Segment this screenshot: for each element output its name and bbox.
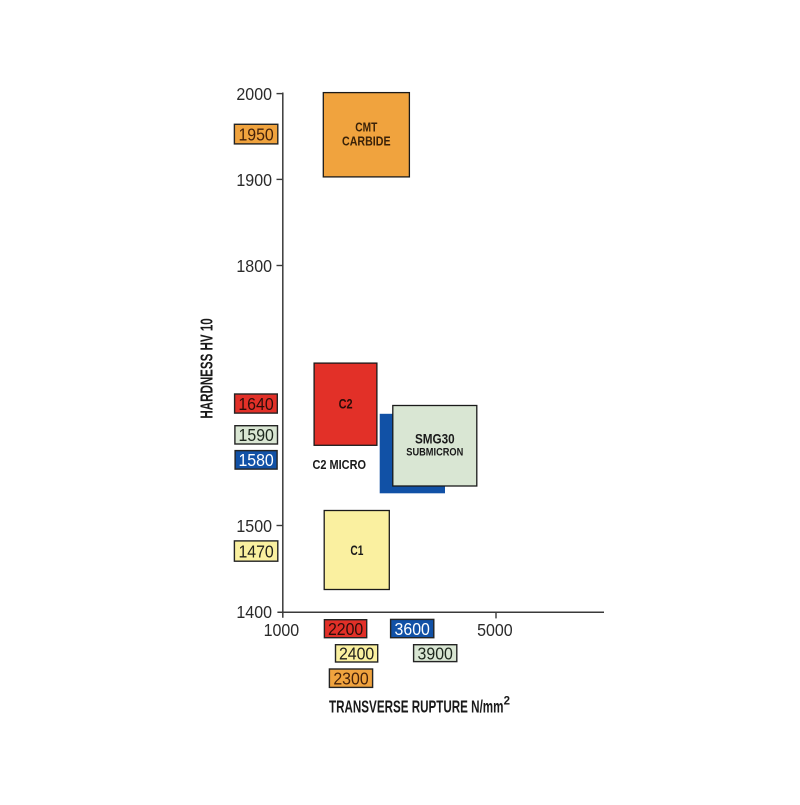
svg-text:CARBIDE: CARBIDE xyxy=(342,134,391,149)
svg-text:HARDNESS HV 10: HARDNESS HV 10 xyxy=(197,318,217,418)
svg-text:1580: 1580 xyxy=(238,450,274,470)
svg-text:3900: 3900 xyxy=(418,644,454,664)
svg-text:C2 MICRO: C2 MICRO xyxy=(313,458,367,472)
svg-text:2400: 2400 xyxy=(339,644,375,664)
svg-text:1400: 1400 xyxy=(236,602,272,622)
svg-text:5000: 5000 xyxy=(477,620,513,640)
svg-text:2300: 2300 xyxy=(333,669,369,689)
svg-text:1500: 1500 xyxy=(236,516,272,536)
svg-text:CMT: CMT xyxy=(355,119,377,134)
svg-text:2: 2 xyxy=(504,696,510,708)
svg-text:SMG30: SMG30 xyxy=(415,431,455,446)
svg-text:3600: 3600 xyxy=(395,619,431,639)
svg-text:1590: 1590 xyxy=(239,425,275,445)
svg-text:1900: 1900 xyxy=(236,170,272,190)
svg-text:1640: 1640 xyxy=(238,394,274,414)
svg-text:1800: 1800 xyxy=(236,256,272,276)
svg-text:1470: 1470 xyxy=(238,541,274,561)
svg-text:C2: C2 xyxy=(339,397,353,412)
svg-text:1950: 1950 xyxy=(238,124,274,144)
svg-text:1000: 1000 xyxy=(264,620,300,640)
svg-text:2000: 2000 xyxy=(236,84,272,104)
svg-text:SUBMICRON: SUBMICRON xyxy=(406,446,463,458)
svg-text:TRANSVERSE RUPTURE N/mm: TRANSVERSE RUPTURE N/mm xyxy=(329,696,504,716)
svg-text:C1: C1 xyxy=(350,542,363,558)
svg-text:2200: 2200 xyxy=(328,619,364,639)
